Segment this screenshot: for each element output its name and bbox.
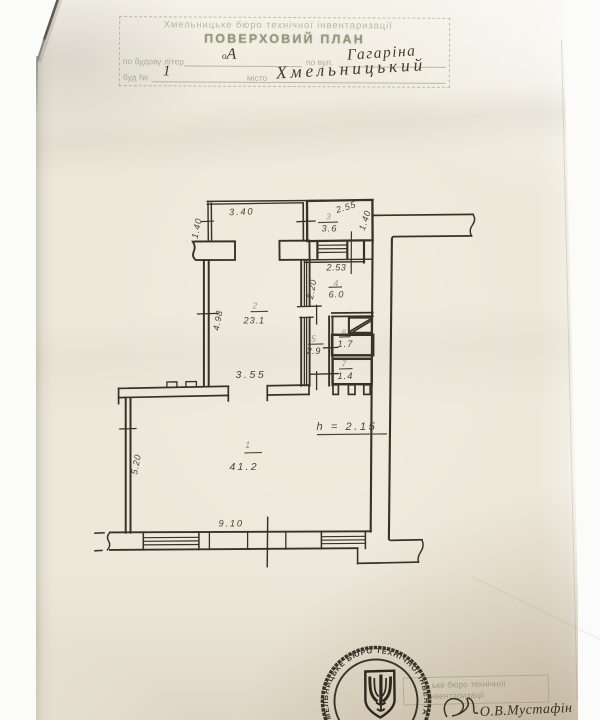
- svg-text:1: 1: [245, 440, 250, 451]
- svg-text:2: 2: [252, 301, 258, 311]
- svg-text:4.98: 4.98: [211, 309, 224, 331]
- svg-text:1.7: 1.7: [338, 339, 354, 349]
- svg-text:7: 7: [342, 359, 347, 369]
- svg-text:3.55: 3.55: [236, 369, 267, 381]
- svg-text:2.9: 2.9: [306, 346, 321, 356]
- svg-text:23.1: 23.1: [243, 316, 265, 326]
- svg-text:3: 3: [326, 212, 331, 222]
- svg-text:2.53: 2.53: [326, 263, 347, 273]
- svg-text:О.В.Мустафін: О.В.Мустафін: [480, 701, 573, 720]
- svg-text:6: 6: [342, 328, 347, 338]
- svg-text:h = 2.15: h = 2.15: [317, 421, 378, 433]
- svg-text:1.4: 1.4: [338, 371, 354, 381]
- svg-text:3.40: 3.40: [229, 206, 255, 217]
- svg-text:1.40: 1.40: [357, 209, 373, 232]
- svg-text:5: 5: [311, 334, 316, 344]
- svg-text:6.0: 6.0: [329, 290, 345, 300]
- svg-text:9.10: 9.10: [219, 519, 244, 529]
- svg-text:1.40: 1.40: [190, 217, 204, 239]
- svg-text:3.6: 3.6: [322, 224, 338, 234]
- svg-text:41.2: 41.2: [230, 461, 259, 473]
